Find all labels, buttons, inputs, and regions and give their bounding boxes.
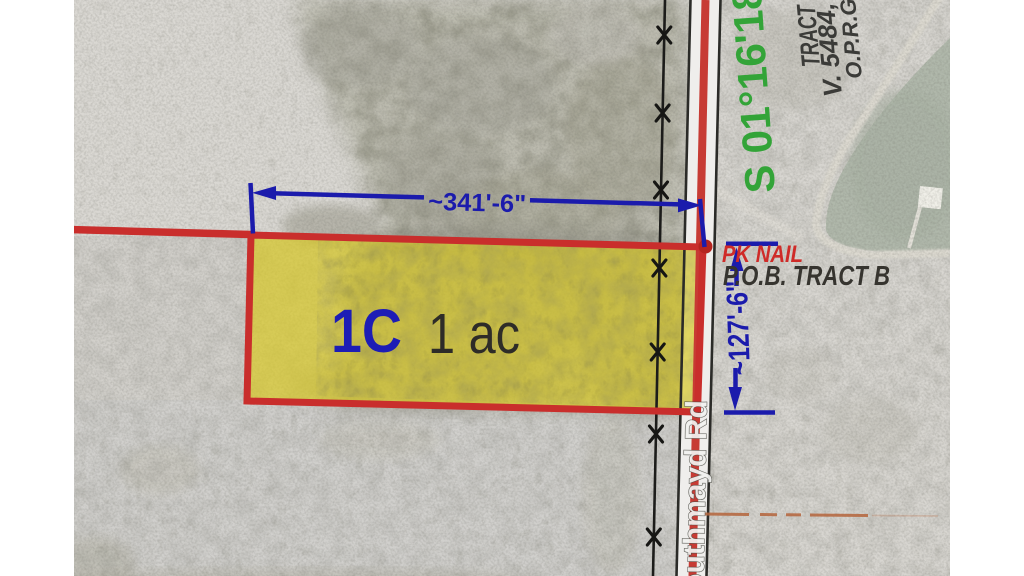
svg-text:~127'-6": ~127'-6" [721, 280, 757, 376]
svg-text:P.O.B. TRACT B: P.O.B. TRACT B [723, 260, 890, 291]
svg-text:~341'-6": ~341'-6" [428, 188, 527, 219]
svg-text:1C: 1C [331, 297, 402, 365]
svg-text:Southmayd Rd: Southmayd Rd [677, 400, 714, 576]
svg-text:1 ac: 1 ac [428, 302, 520, 366]
